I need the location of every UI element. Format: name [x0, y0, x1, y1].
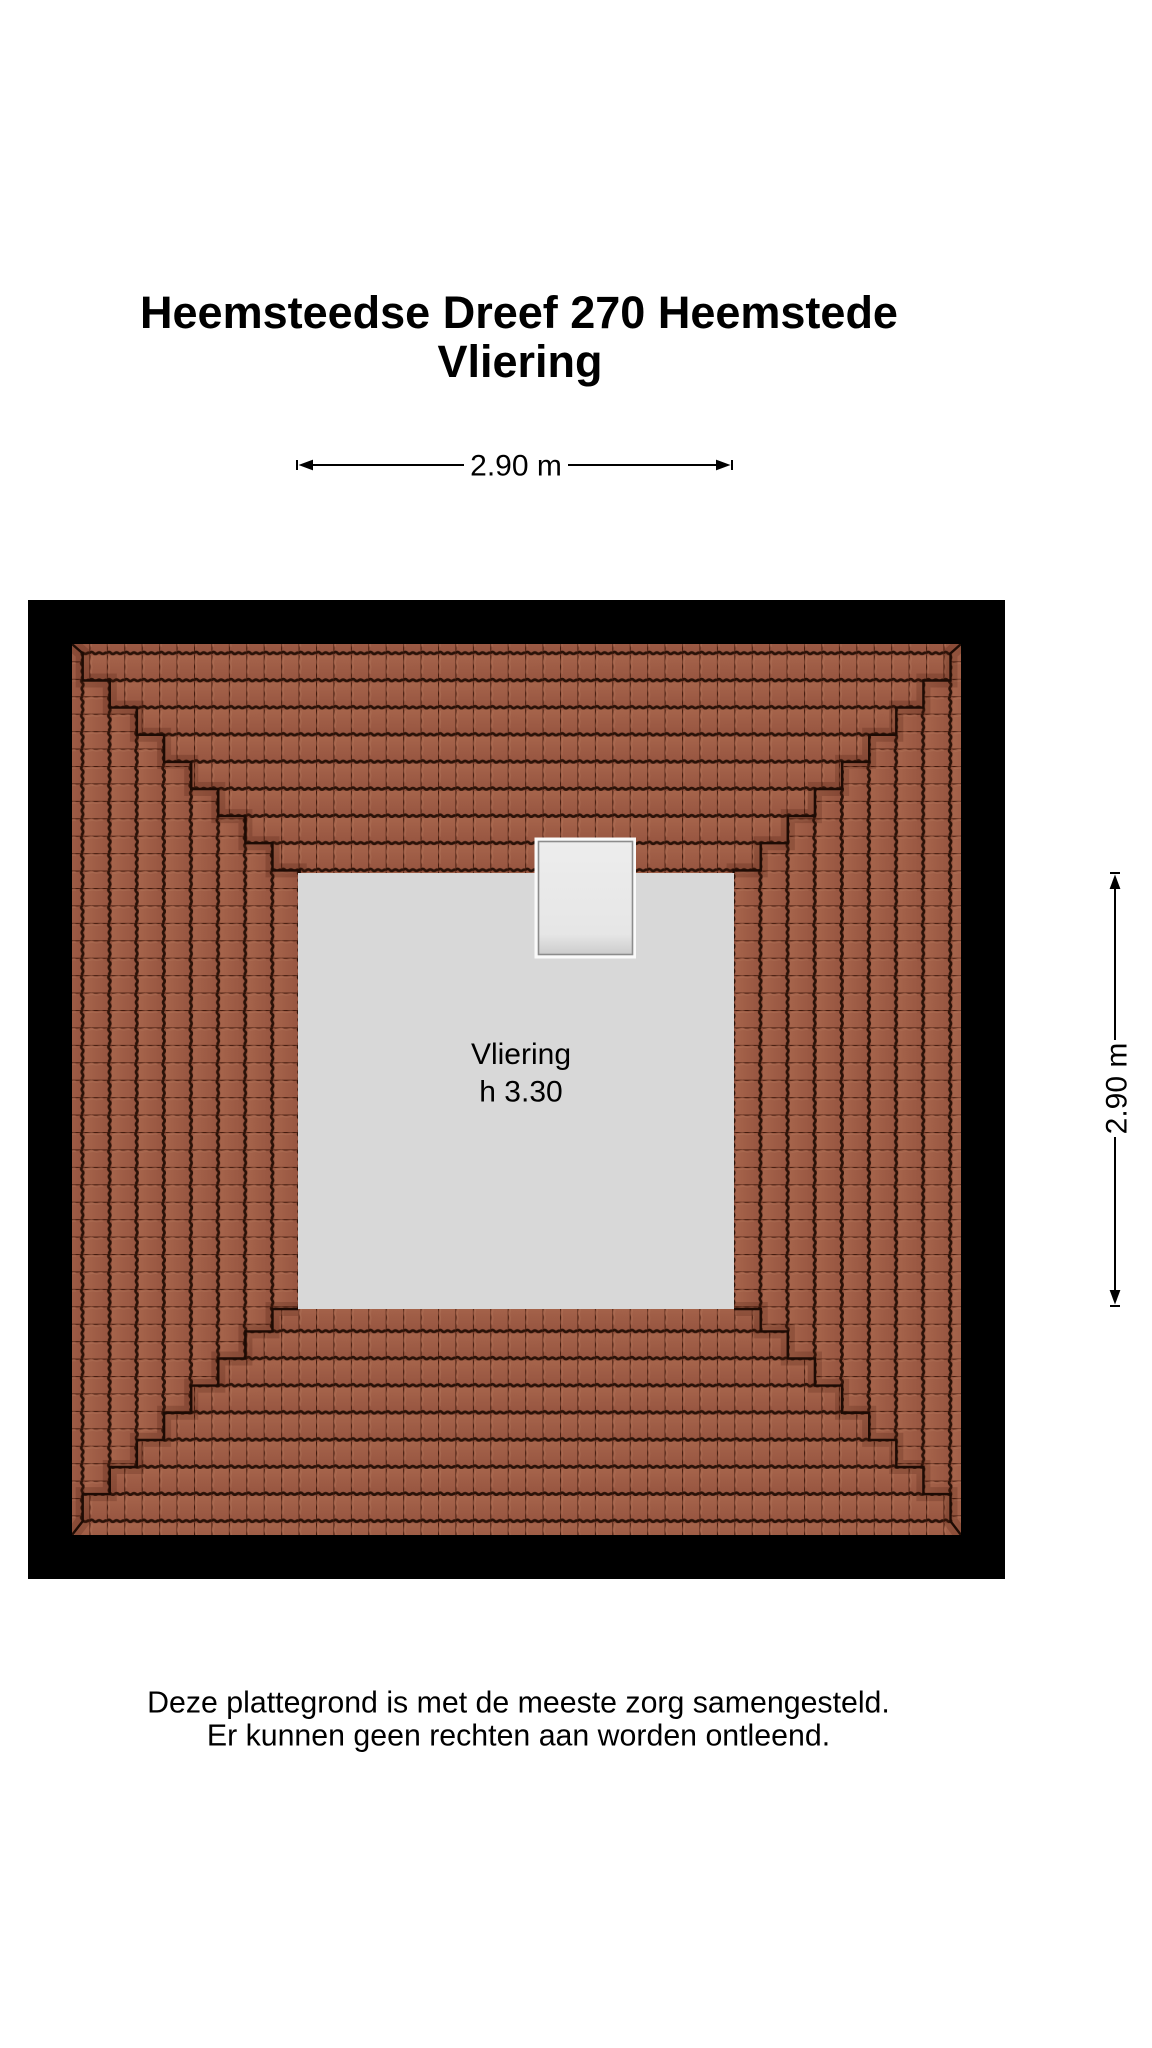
svg-text:Heemsteedse Dreef 270 Heemsted: Heemsteedse Dreef 270 Heemstede — [140, 287, 898, 338]
svg-text:h 3.30: h 3.30 — [479, 1076, 562, 1109]
svg-text:Deze plattegrond is met de mee: Deze plattegrond is met de meeste zorg s… — [147, 1686, 890, 1719]
svg-text:2.90 m: 2.90 m — [1101, 1043, 1134, 1135]
svg-text:Vliering: Vliering — [471, 1038, 571, 1071]
svg-text:2.90 m: 2.90 m — [470, 450, 562, 483]
svg-text:Er kunnen geen rechten aan wor: Er kunnen geen rechten aan worden ontlee… — [207, 1719, 830, 1752]
svg-text:Vliering: Vliering — [437, 336, 602, 387]
